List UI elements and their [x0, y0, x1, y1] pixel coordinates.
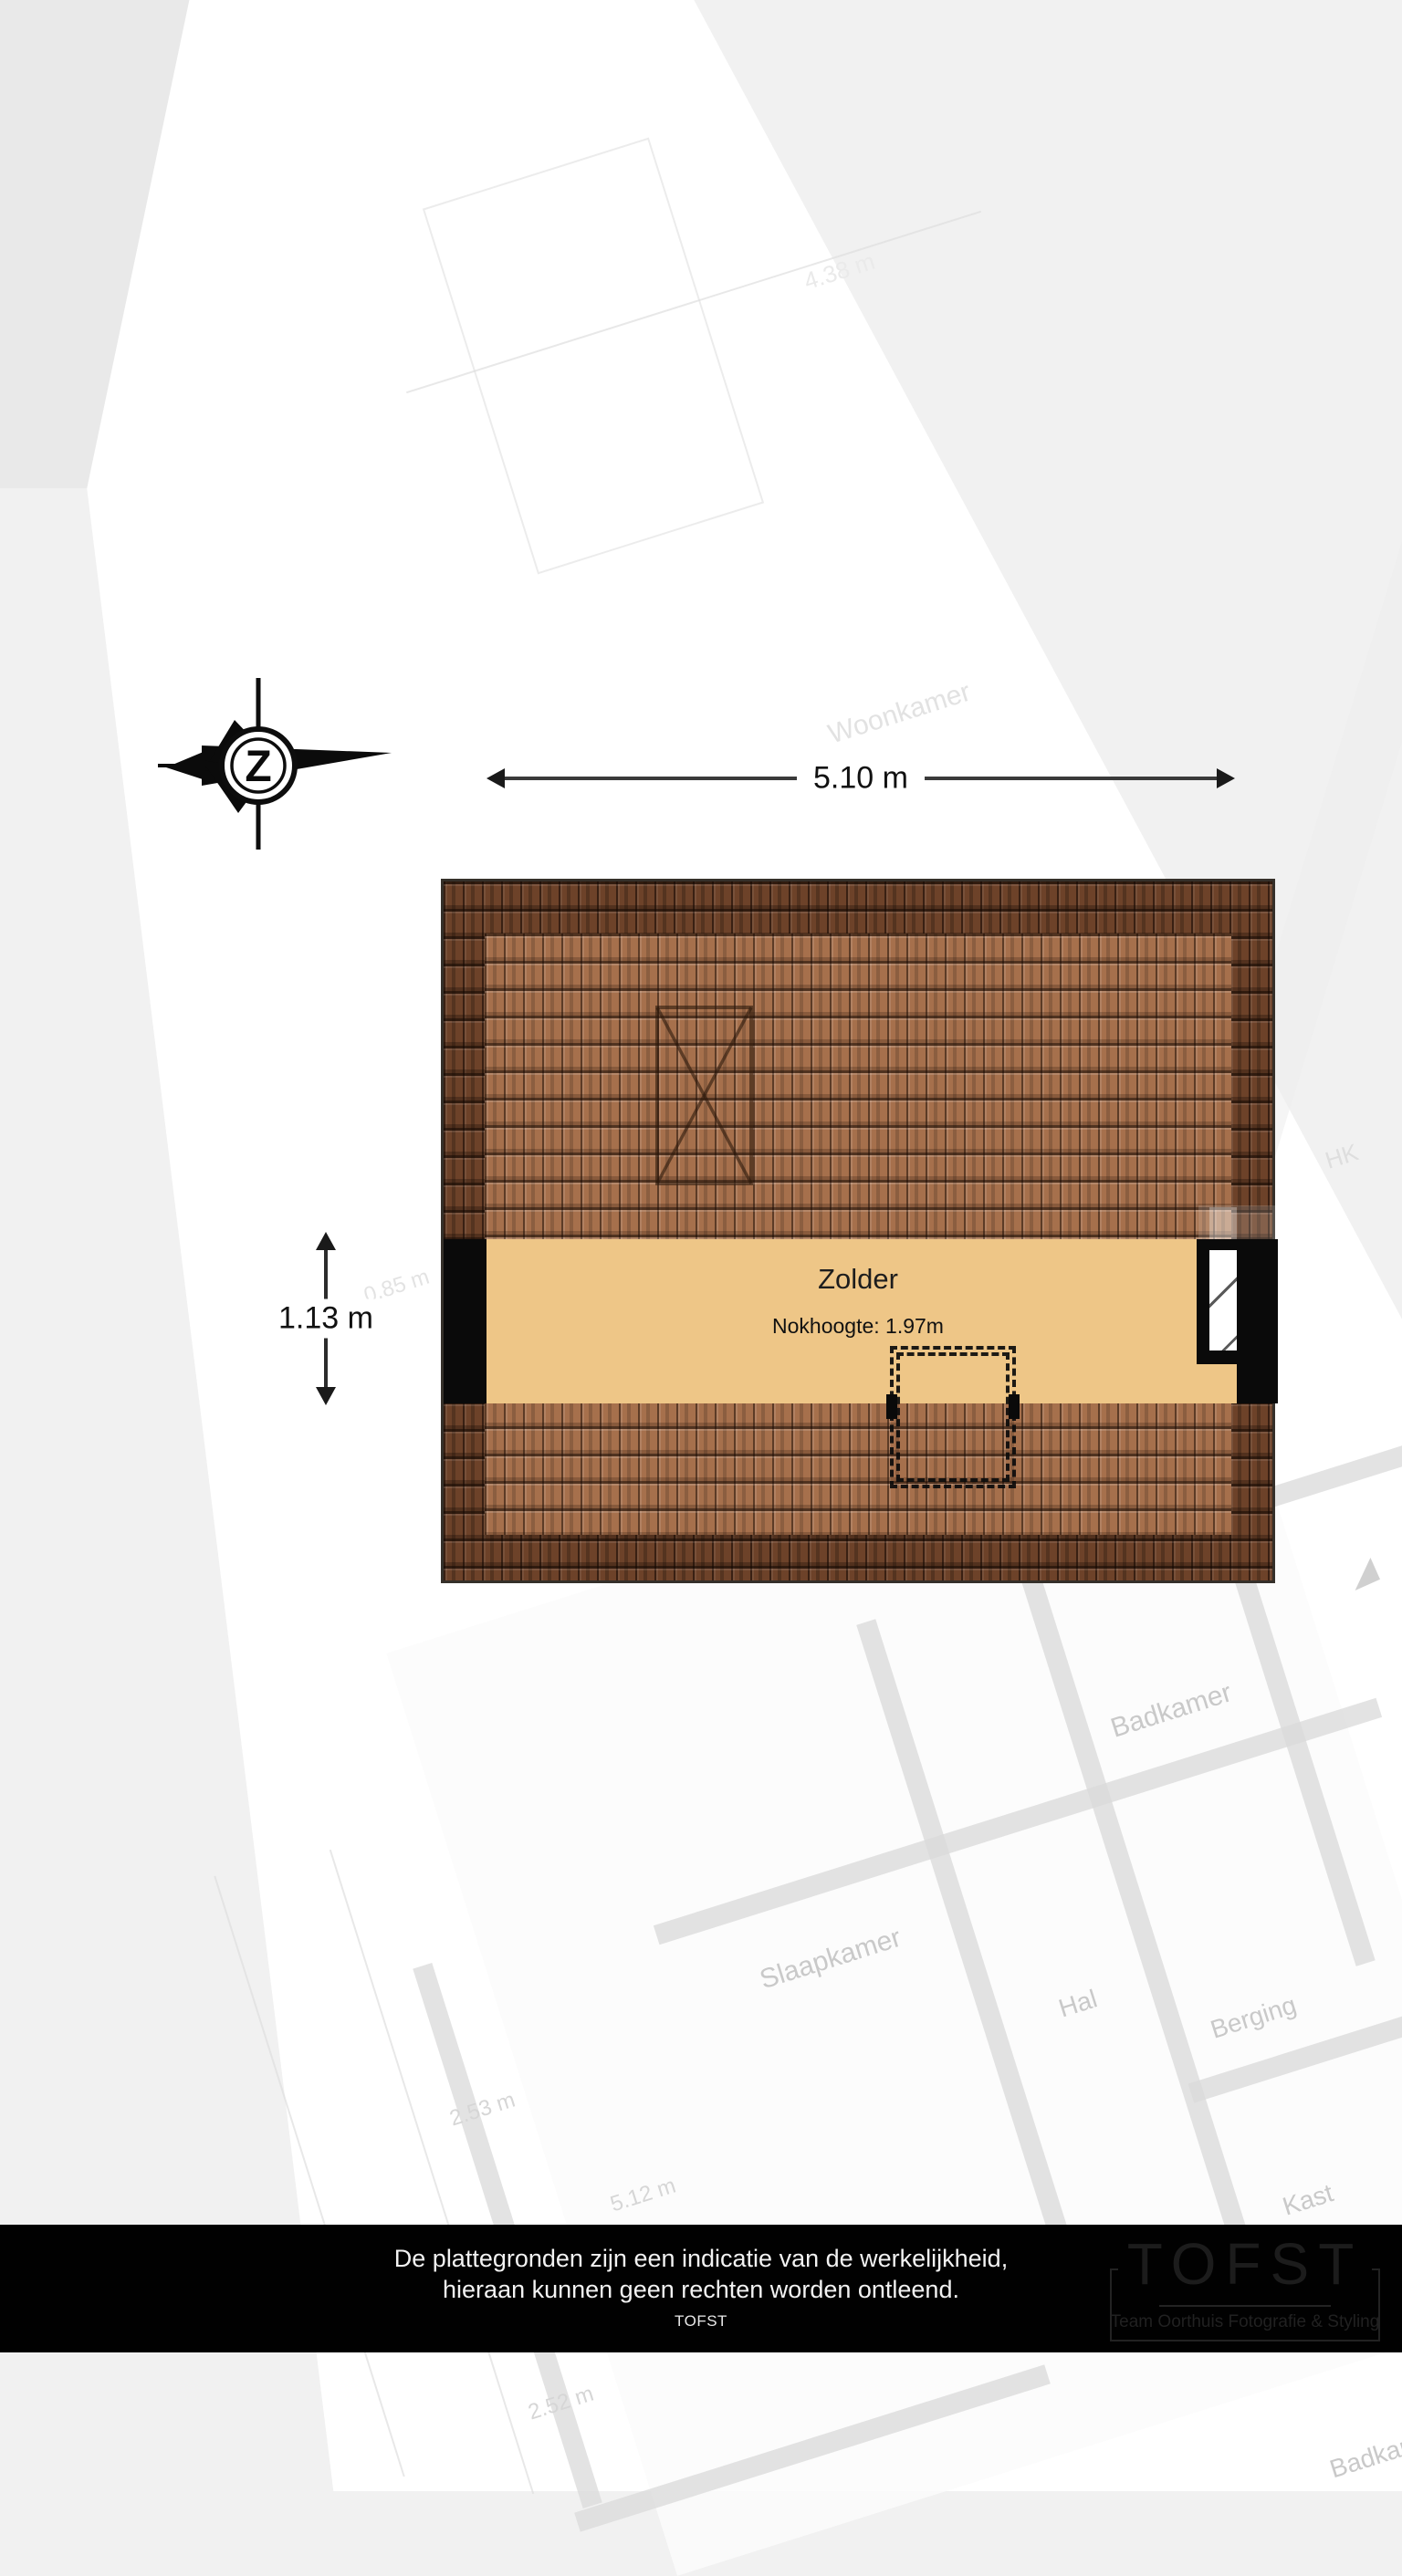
wall-stub-left	[886, 1394, 897, 1419]
room-name-label: Zolder	[444, 1263, 1272, 1296]
ghost-label-hk: HK	[1322, 1138, 1362, 1174]
arrow-right-icon	[1217, 768, 1235, 788]
stair-opening-inner	[896, 1352, 1010, 1482]
wall-stub-right	[1009, 1394, 1020, 1419]
dimension-height: 1.13 m	[308, 1232, 344, 1405]
logo-title-text: TOFST	[1118, 2231, 1373, 2297]
tofst-logo: TOFST Team Oorthuis Fotografie & Styling	[1106, 2236, 1384, 2345]
floor-notch	[1197, 1364, 1237, 1403]
dimension-width: 5.10 m	[487, 765, 1235, 792]
window-roof-tint	[1209, 1207, 1237, 1239]
attic-floorplan: Zolder Nokhoogte: 1.97m	[441, 879, 1275, 1583]
compass-north-arrow: Z	[151, 671, 406, 853]
dimension-width-label: 5.10 m	[797, 757, 925, 800]
floorplan-page: { "compass": { "letter": "Z" }, "dimensi…	[0, 0, 1402, 2491]
logo-title: TOFST	[1106, 2230, 1384, 2298]
logo-subtitle: Team Oorthuis Fotografie & Styling	[1106, 2312, 1384, 2332]
arrow-up-icon	[316, 1232, 336, 1250]
logo-divider	[1159, 2305, 1331, 2307]
roof-tiles-inner	[485, 933, 1231, 1535]
compass-letter: Z	[245, 743, 271, 791]
footer-bar: De plattegronden zijn een indicatie van …	[0, 2225, 1402, 2352]
roof-window-icon	[655, 1006, 753, 1185]
stair-opening	[890, 1346, 1016, 1488]
arrow-down-icon	[316, 1387, 336, 1405]
arrow-left-icon	[487, 768, 505, 788]
dimension-height-label: 1.13 m	[269, 1299, 382, 1339]
ridge-height-label: Nokhoogte: 1.97m	[444, 1314, 1272, 1339]
